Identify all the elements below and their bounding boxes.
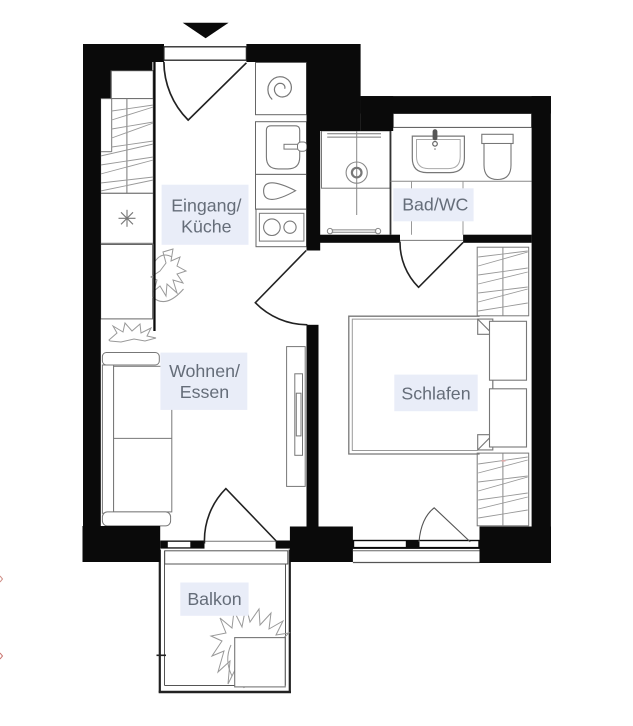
svg-text:Eingang/: Eingang/ <box>171 196 241 216</box>
svg-text:Wohnen/: Wohnen/ <box>169 361 240 381</box>
svg-text:Balkon: Balkon <box>187 589 241 609</box>
svg-text:Küche: Küche <box>181 217 232 237</box>
svg-text:Bad/WC: Bad/WC <box>402 195 468 215</box>
svg-text:Schlafen: Schlafen <box>401 383 470 403</box>
svg-text:Essen: Essen <box>180 382 229 402</box>
